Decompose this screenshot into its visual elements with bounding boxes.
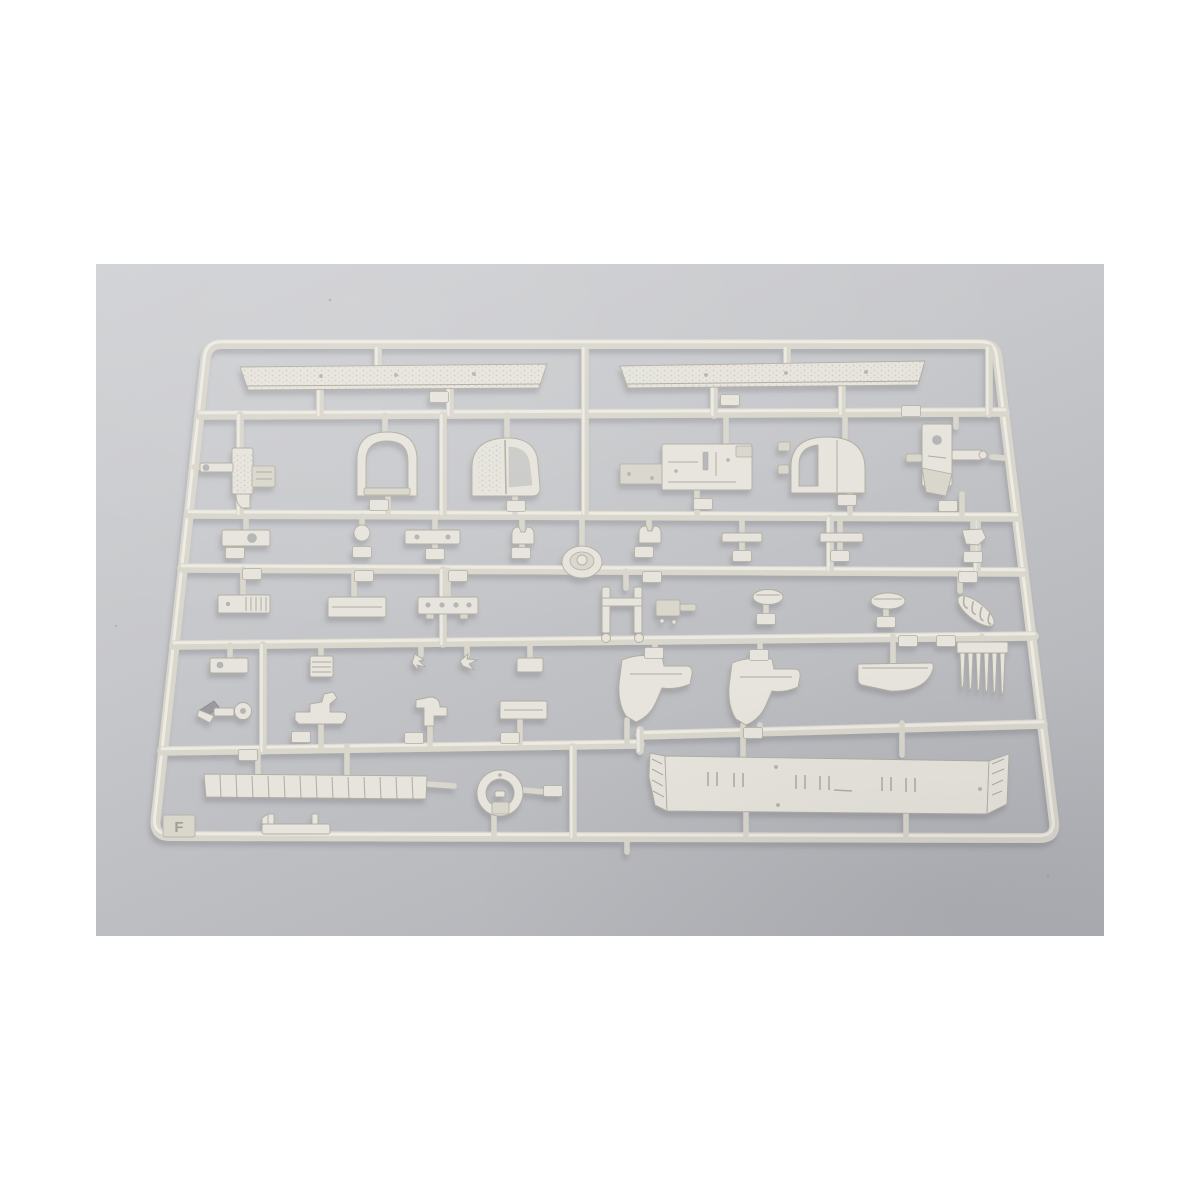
- bar-plate-two-holes: [405, 530, 460, 544]
- cockpit-arch-half-solid: [472, 438, 540, 496]
- flat-block: [328, 597, 386, 617]
- h-frame-seat: [602, 587, 697, 643]
- lollipop-fitting: [354, 525, 370, 541]
- walkway-strip-right: [620, 361, 925, 388]
- cockpit-arch-solid: [778, 437, 865, 493]
- cockpit-arch-open: [357, 432, 417, 496]
- sprue: F: [154, 342, 1054, 852]
- bracket-cluster-left: [200, 448, 275, 508]
- plate-with-hole: [222, 530, 270, 546]
- pod-fitting-b: [871, 593, 905, 609]
- plate-four-holes: [418, 597, 478, 619]
- walkway-strip-left: [240, 364, 547, 390]
- t-fitting-a: [722, 533, 762, 542]
- turntable-dome: [562, 546, 602, 578]
- ribbed-square: [310, 656, 333, 677]
- six-tooth-comb: [957, 642, 1008, 696]
- seat-bracket: [295, 692, 347, 724]
- wishbone-and-knob: [197, 701, 252, 723]
- pronged-rail-bracket: [262, 814, 330, 834]
- cabin-box-structure: [620, 444, 752, 490]
- hull-section-b: [729, 659, 800, 726]
- lug-plate: [210, 658, 248, 673]
- ribbed-radiator-box: [218, 595, 270, 613]
- winch-bracket: [906, 424, 987, 496]
- long-flat-deck-plate: [649, 753, 1009, 814]
- pod-fitting-a: [753, 590, 783, 605]
- ring-mount: [477, 770, 523, 816]
- coiled-rope-reel: [953, 591, 998, 631]
- sprue-illustration: F: [96, 264, 1104, 936]
- product-photo: F: [96, 264, 1104, 936]
- hook-bracket: [416, 697, 447, 726]
- sprue-letter-tab: F: [163, 815, 195, 837]
- flag-fitting: [962, 529, 986, 545]
- flat-plate: [500, 701, 547, 719]
- t-fitting-b: [820, 533, 863, 542]
- segmented-deck-plank: [204, 774, 427, 799]
- hull-curve-blade: [858, 663, 933, 691]
- sprue-rails: [162, 412, 1043, 751]
- hull-section-a: [619, 656, 692, 723]
- arrow-fitting-a: [412, 654, 426, 671]
- small-rect-plate: [517, 658, 543, 672]
- sprue-letter: F: [174, 819, 183, 836]
